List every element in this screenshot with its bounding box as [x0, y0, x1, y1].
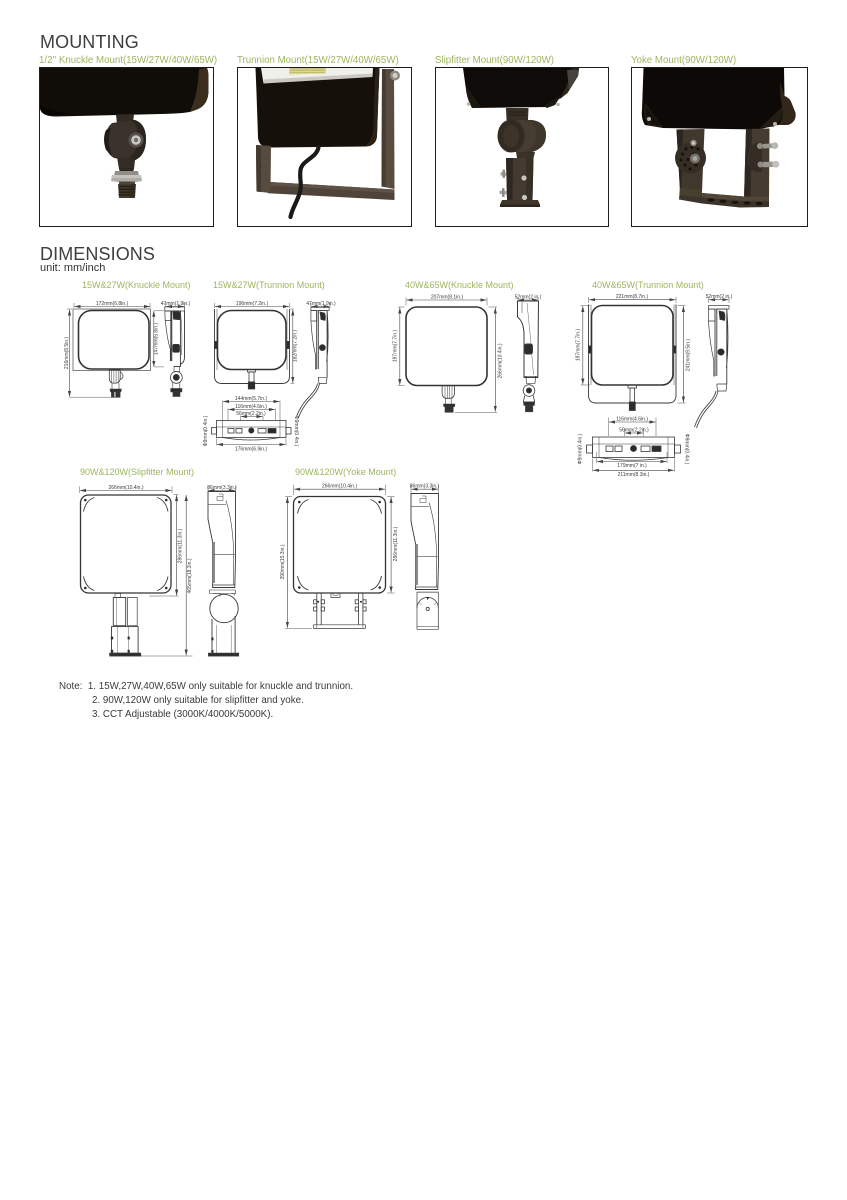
svg-text:56mm(2.2in.): 56mm(2.2in.) [236, 411, 266, 417]
svg-text:Φ9mm(0.4in.): Φ9mm(0.4in.) [578, 433, 584, 464]
svg-text:266mm(10.4in.): 266mm(10.4in.) [322, 484, 357, 490]
svg-text:465mm(18.3in.): 465mm(18.3in.) [187, 558, 193, 593]
svg-text:Φ9mm(0.4in.): Φ9mm(0.4in.) [293, 416, 299, 447]
svg-text:144mm(5.7in.): 144mm(5.7in.) [235, 396, 268, 402]
svg-text:86mm(3.3in.): 86mm(3.3in.) [410, 484, 440, 490]
svg-text:197mm(7.7in.): 197mm(7.7in.) [393, 330, 399, 363]
svg-text:Φ9mm(0.4in.): Φ9mm(0.4in.) [684, 434, 690, 465]
svg-text:182mm(7.2in.): 182mm(7.2in.) [293, 330, 299, 363]
svg-text:207mm(8.1in.): 207mm(8.1in.) [431, 295, 464, 301]
svg-text:86mm(3.3in.): 86mm(3.3in.) [207, 485, 237, 491]
svg-text:196mm(7.2in.): 196mm(7.2in.) [236, 301, 269, 307]
svg-text:266mm(10.4in.): 266mm(10.4in.) [498, 343, 504, 378]
svg-text:116mm(4.6in.): 116mm(4.6in.) [616, 417, 648, 423]
svg-text:179mm(7 in.): 179mm(7 in.) [617, 463, 647, 469]
svg-text:52mm(2 in.): 52mm(2 in.) [515, 295, 542, 301]
svg-text:286mm(11.3in.): 286mm(11.3in.) [393, 526, 399, 561]
svg-text:47mm(1.9in.): 47mm(1.9in.) [306, 301, 336, 307]
svg-text:116mm(4.6in.): 116mm(4.6in.) [235, 404, 267, 410]
svg-text:147mm(5.8in.): 147mm(5.8in.) [154, 323, 160, 356]
svg-text:52mm(2 in.): 52mm(2 in.) [706, 294, 733, 300]
svg-text:197mm(7.7in.): 197mm(7.7in.) [576, 329, 582, 362]
svg-text:56mm(2.2in.): 56mm(2.2in.) [619, 428, 649, 434]
svg-text:172mm(6.8in.): 172mm(6.8in.) [96, 301, 129, 307]
svg-text:176mm(6.9in.): 176mm(6.9in.) [235, 447, 268, 453]
svg-text:Φ9mm(0.4in.): Φ9mm(0.4in.) [203, 415, 209, 446]
svg-text:216mm(8.5in.): 216mm(8.5in.) [64, 337, 70, 370]
svg-text:221mm(8.7in.): 221mm(8.7in.) [616, 294, 649, 300]
svg-text:286mm(11.3in.): 286mm(11.3in.) [178, 528, 184, 563]
svg-text:390mm(15.3in.): 390mm(15.3in.) [280, 544, 286, 579]
svg-text:47mm(1.9in.): 47mm(1.9in.) [161, 301, 191, 307]
svg-text:241mm(9.5in.): 241mm(9.5in.) [686, 339, 692, 372]
svg-text:211mm(8.3in.): 211mm(8.3in.) [618, 472, 650, 478]
svg-text:266mm(10.4in.): 266mm(10.4in.) [108, 485, 143, 491]
